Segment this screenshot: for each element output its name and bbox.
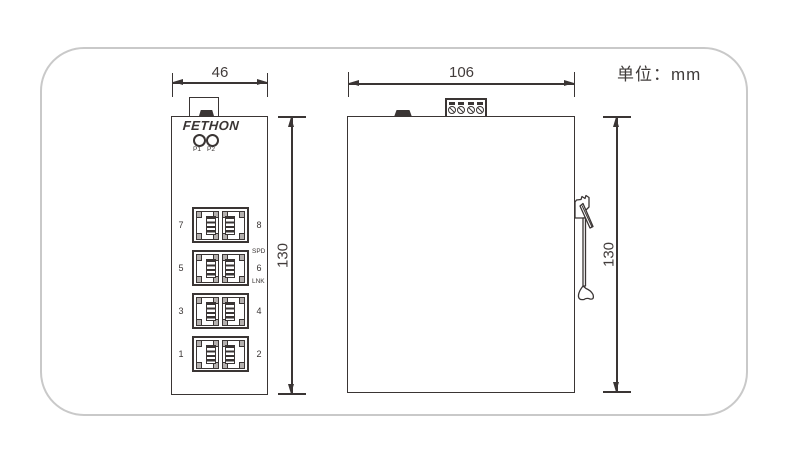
terminal-block xyxy=(445,98,487,118)
arrow-down-icon xyxy=(613,382,619,392)
rj45-port-pair xyxy=(192,250,249,286)
port-number: 4 xyxy=(253,306,265,316)
screw-icon xyxy=(467,106,475,114)
switch-side-body xyxy=(347,116,575,393)
terminal-pin xyxy=(476,102,484,114)
arrow-down-icon xyxy=(288,384,294,394)
terminal-pin xyxy=(457,102,465,114)
rj45-port-icon xyxy=(196,254,219,283)
screw-icon xyxy=(476,106,484,114)
dimension-drawing: 单位：mm 46 FETHON P1 P2 7 8 xyxy=(0,0,790,467)
port-number: 7 xyxy=(175,220,187,230)
speed-led-label: SPD xyxy=(252,248,270,255)
front-width-dimension: 46 xyxy=(173,64,267,81)
screw-icon xyxy=(448,106,456,114)
terminal-pin xyxy=(448,102,456,114)
port-number: 5 xyxy=(175,263,187,273)
link-led-label: LNK xyxy=(252,278,270,285)
port-number: 2 xyxy=(253,349,265,359)
side-width-dimension: 106 xyxy=(349,64,574,81)
terminal-pin xyxy=(467,102,475,114)
rj45-port-icon xyxy=(196,297,219,326)
brand-logo: FETHON xyxy=(177,118,244,133)
rj45-port-icon xyxy=(196,211,219,240)
unit-label: 单位：mm xyxy=(617,60,701,85)
rj45-port-icon xyxy=(222,211,245,240)
rj45-port-pair xyxy=(192,336,249,372)
arrow-up-icon xyxy=(613,117,619,127)
front-height-dimension: 130 xyxy=(275,239,292,273)
rj45-port-pair xyxy=(192,207,249,243)
screw-icon xyxy=(457,106,465,114)
port-number: 6 xyxy=(253,263,265,273)
rj45-port-icon xyxy=(196,340,219,369)
dimension-line xyxy=(173,82,267,84)
port-number: 8 xyxy=(253,220,265,230)
rj45-port-icon xyxy=(222,297,245,326)
din-rail-clip-icon xyxy=(573,194,600,316)
port-number: 3 xyxy=(175,306,187,316)
led-p2-label: P2 xyxy=(204,146,218,153)
rj45-port-icon xyxy=(222,340,245,369)
arrow-up-icon xyxy=(288,117,294,127)
side-height-dimension: 130 xyxy=(601,238,618,272)
dimension-line xyxy=(349,83,574,85)
led-p1-label: P1 xyxy=(190,146,204,153)
port-number: 1 xyxy=(175,349,187,359)
rj45-port-icon xyxy=(222,254,245,283)
rj45-port-pair xyxy=(192,293,249,329)
